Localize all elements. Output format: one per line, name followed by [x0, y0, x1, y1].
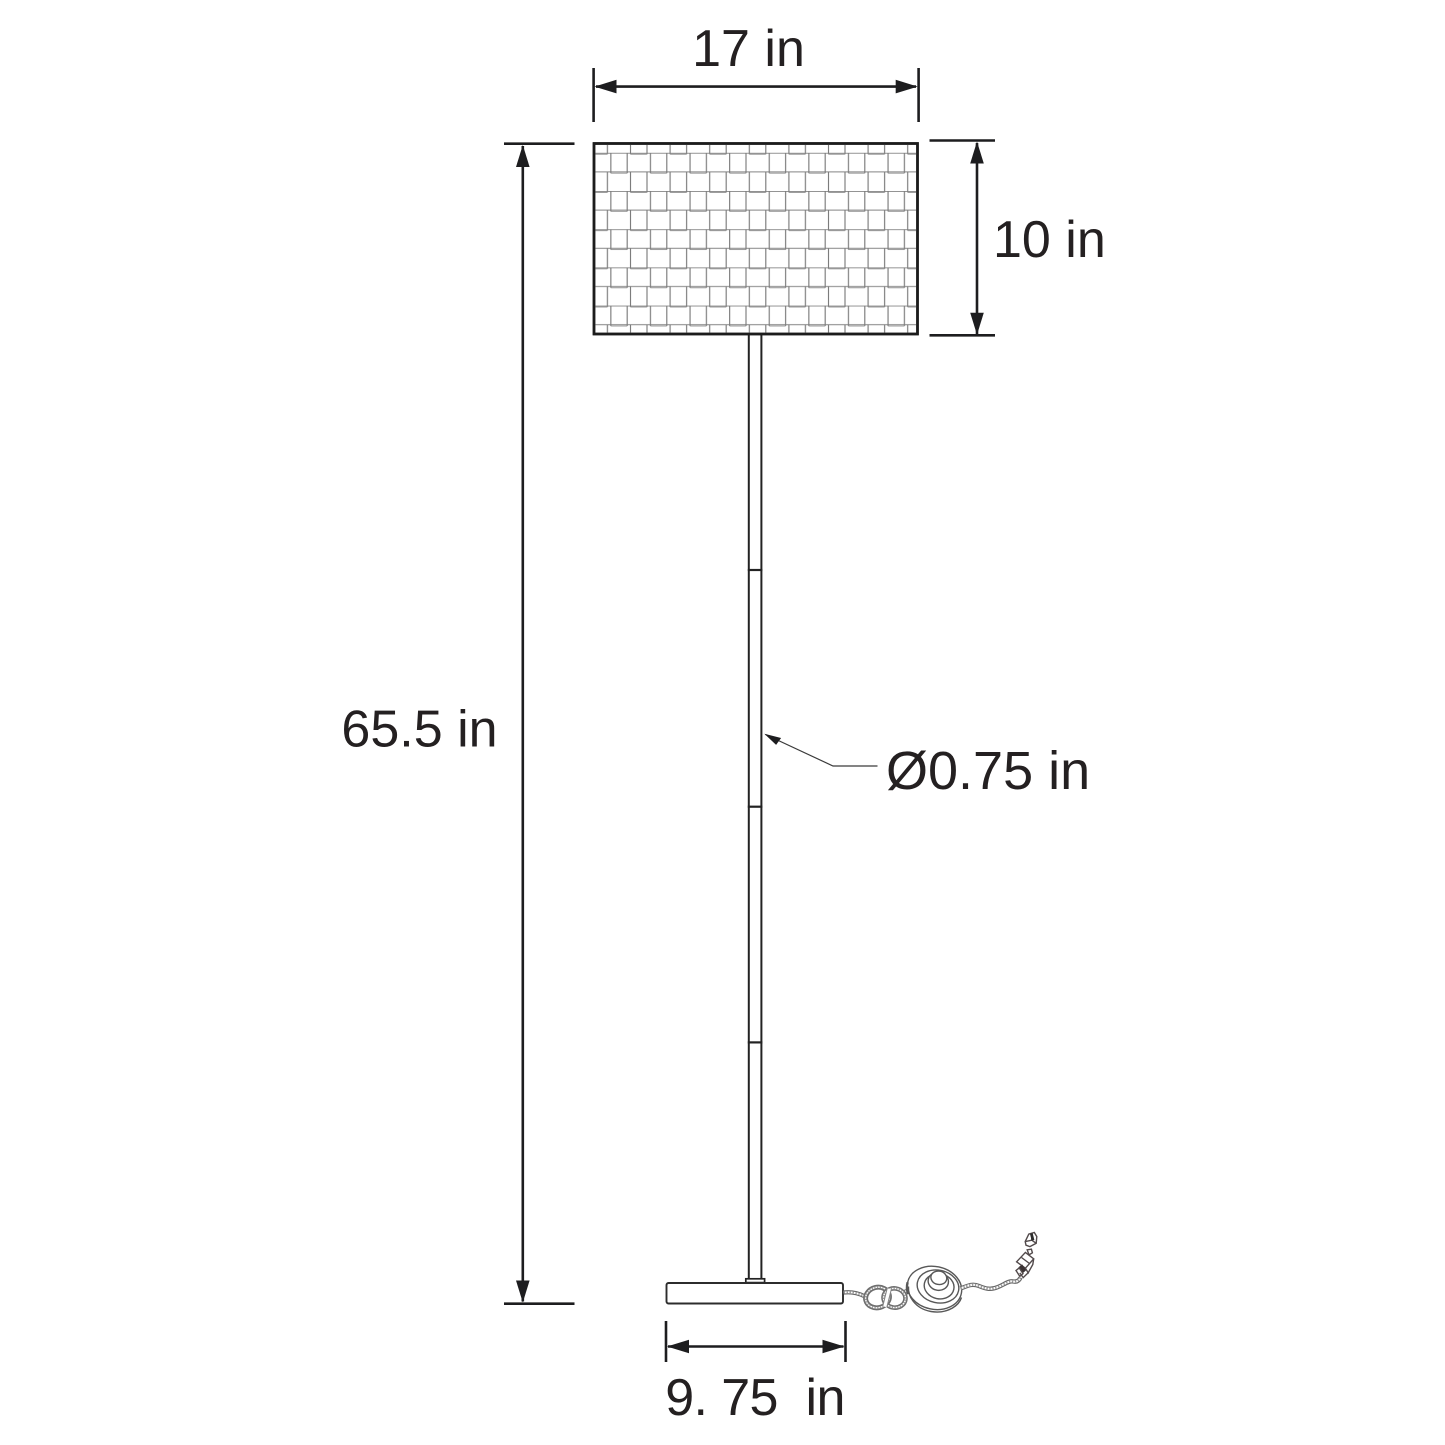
- svg-text:65.5 in: 65.5 in: [341, 701, 497, 759]
- svg-text:10 in: 10 in: [993, 211, 1106, 269]
- svg-text:17 in: 17 in: [692, 20, 805, 78]
- svg-text:9. 75 in: 9. 75 in: [665, 1369, 845, 1427]
- svg-text:Ø0.75 in: Ø0.75 in: [886, 741, 1090, 801]
